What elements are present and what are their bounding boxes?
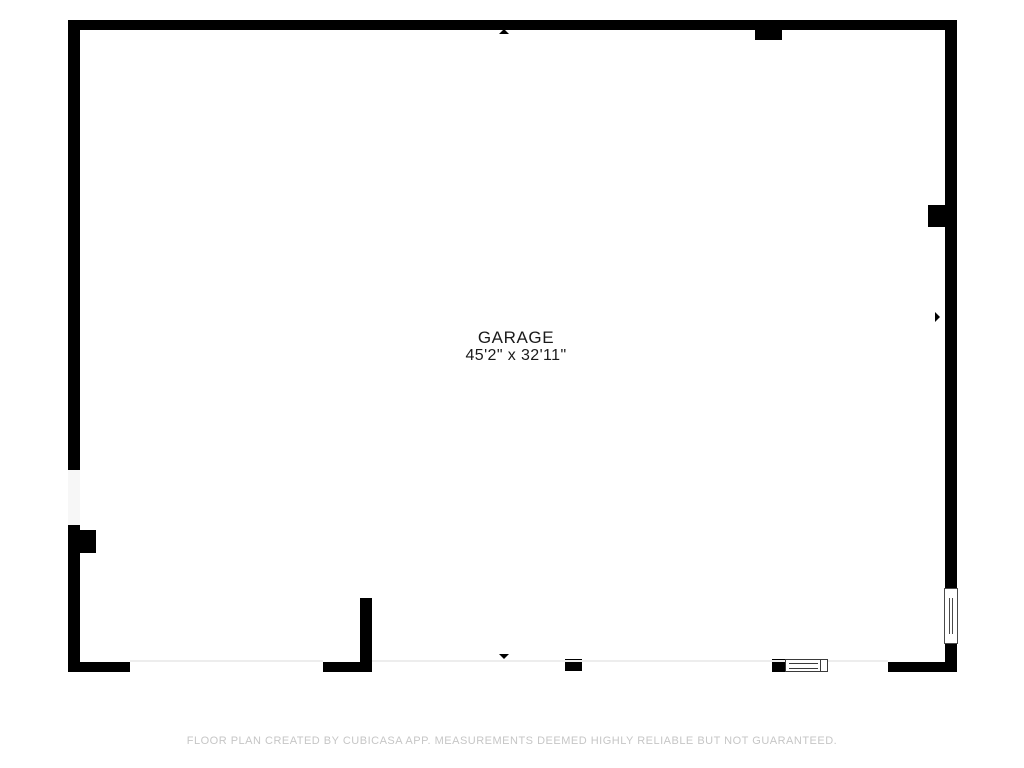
window-icon [785, 659, 828, 672]
floor-plan-canvas: GARAGE 45'2" x 32'11" FLOOR PLAN CREATED… [0, 0, 1024, 768]
footer-disclaimer: FLOOR PLAN CREATED BY CUBICASA APP. MEAS… [0, 735, 1024, 747]
pillar-left-wall [68, 530, 96, 553]
wall-bottom-right [888, 662, 957, 672]
wall-opening-left [68, 470, 80, 525]
arrow-left-icon [75, 313, 80, 323]
window-pane [949, 598, 953, 634]
window-divider [820, 660, 821, 671]
room-label: GARAGE [366, 328, 666, 348]
pillar-right-wall [928, 205, 946, 227]
window-icon [944, 588, 958, 644]
garage-door-opening-left [130, 660, 323, 662]
wall-right-upper [945, 20, 957, 588]
arrow-right-icon [935, 312, 940, 322]
wall-left-upper [68, 20, 80, 470]
room-dimensions: 45'2" x 32'11" [366, 347, 666, 365]
arrow-up-icon [499, 29, 509, 34]
interior-wall-stub [360, 598, 372, 672]
window-pane [789, 663, 818, 669]
wall-top [68, 20, 957, 30]
pillar-top-wall [755, 28, 782, 40]
arrow-down-icon [499, 654, 509, 659]
wall-bottom-left [68, 662, 130, 672]
